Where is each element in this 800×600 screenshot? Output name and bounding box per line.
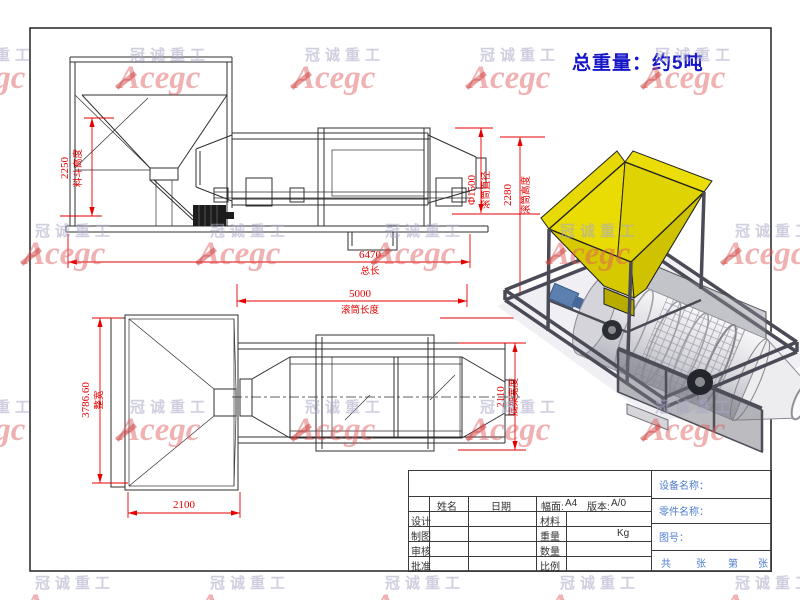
header-name: 姓名 (437, 498, 457, 513)
motor-side-view (193, 205, 234, 226)
weight-unit: Kg (617, 528, 629, 539)
sheet-token-no: 第 (728, 555, 738, 570)
dim-total-length-label: 总长 (360, 265, 380, 277)
drawing-no-label: 图号： (659, 529, 689, 544)
dim-drum-length-value: 5000 (349, 288, 372, 300)
format-label: 幅面: (541, 498, 564, 513)
row-field-material: 材料 (540, 513, 560, 528)
dim-total-length-value: 6470 (359, 249, 382, 261)
sheet-token-total: 共 (661, 555, 671, 570)
dim-drum-diameter-label: 滚筒直径 (480, 171, 492, 210)
row-role-draft: 制图 (411, 528, 431, 543)
header-date: 日期 (491, 498, 511, 513)
sheet-token-zhang2: 张 (758, 555, 768, 570)
screen-mesh (332, 357, 460, 438)
side-view (66, 57, 488, 250)
row-role-design: 设计 (411, 513, 431, 528)
row-role-check: 审核 (411, 543, 431, 558)
title-block: 姓名 日期 幅面: A4 版本: A/0 设计 制图 审核 批准 材料 重量 数… (408, 470, 772, 572)
dim-hopper-width-value: 2100 (173, 499, 196, 511)
dim-overall-width-value: 3786.60 (80, 382, 92, 418)
version-value: A/0 (611, 498, 626, 509)
dim-drum-height-label: 滚筒高度 (520, 176, 532, 215)
row-field-scale: 比例 (540, 558, 560, 573)
dim-drum-height-value: 2280 (502, 184, 514, 207)
row-role-approve: 批准 (411, 558, 431, 573)
dim-drum-diameter-value: Φ1500 (466, 174, 478, 205)
render-3d (497, 151, 800, 452)
sheet-token-zhang1: 张 (696, 555, 706, 570)
dim-drum-length-label: 滚筒长度 (341, 304, 380, 316)
plan-view (111, 315, 520, 490)
row-field-quantity: 数量 (540, 543, 560, 558)
dimension-annotations: 2250 料斗高度 Φ1500 滚筒直径 2280 滚筒高度 6470 总长 5… (59, 118, 545, 518)
part-name-label: 零件名称： (659, 503, 709, 518)
row-field-weight: 重量 (540, 528, 560, 543)
total-weight-note: 总重量：约5吨 (572, 48, 704, 75)
dim-base-width-value: 2110 (495, 386, 507, 408)
device-name-label: 设备名称： (659, 477, 709, 492)
dim-hopper-height-value: 2250 (59, 157, 71, 180)
dim-base-width-label: 底架宽度 (508, 378, 520, 417)
format-value: A4 (565, 498, 577, 509)
dim-overall-width-label: 整宽 (93, 390, 105, 410)
dim-hopper-height-label: 料斗高度 (72, 149, 84, 188)
cad-drawing-sheet: { "sheet": { "weight_note": "总重量：约5吨" },… (0, 0, 800, 600)
version-label: 版本: (587, 498, 610, 513)
